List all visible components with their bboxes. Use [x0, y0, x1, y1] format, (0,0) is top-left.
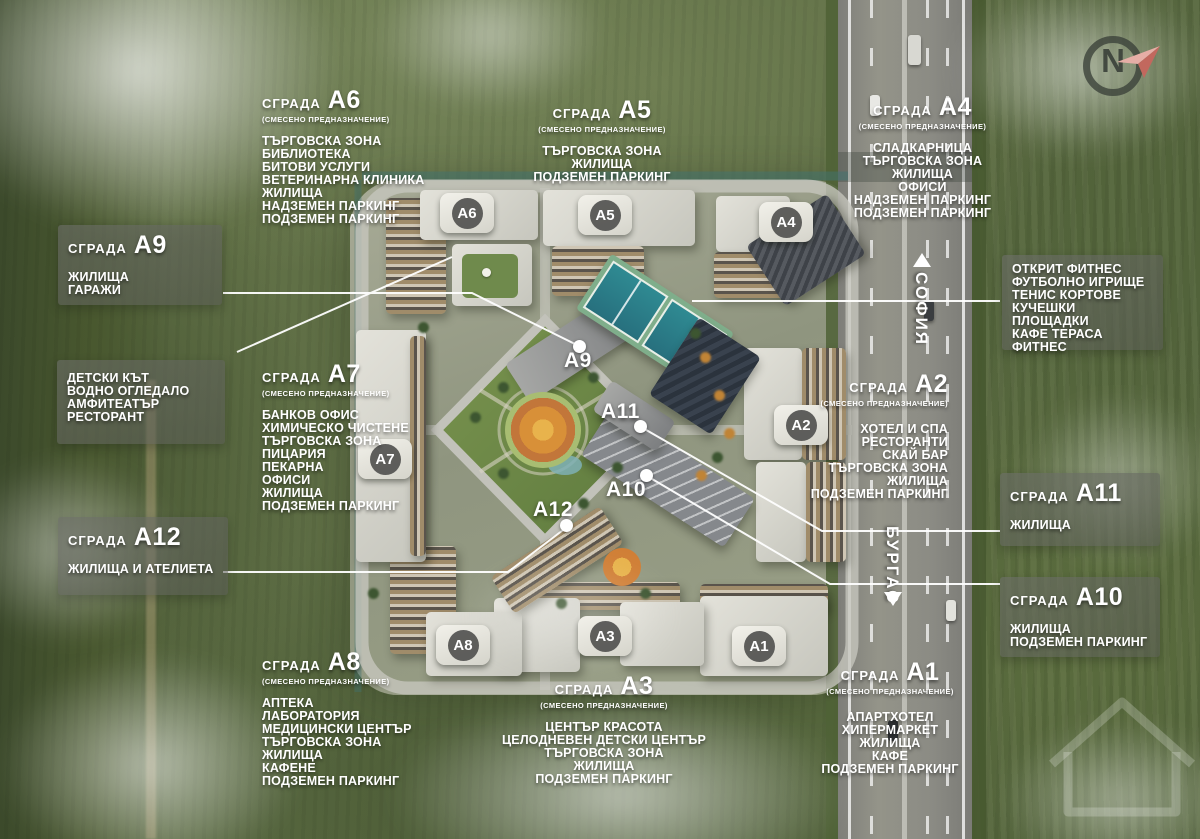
- feature-line: КУЧЕШКИ ПЛОЩАДКИ: [1012, 302, 1153, 328]
- callout-subtitle: (СМЕСЕНО ПРЕДНАЗНАЧЕНИЕ): [491, 125, 713, 134]
- compass-needle-icon: [1117, 40, 1165, 78]
- callout-title: СГРАДАА11: [1010, 481, 1150, 506]
- map-dot-a11: [634, 420, 647, 433]
- callout-a6: СГРАДАА6 (СМЕСЕНО ПРЕДНАЗНАЧЕНИЕ) ТЪРГОВ…: [262, 88, 467, 226]
- feature-line: ЖИЛИЩА: [1010, 519, 1150, 532]
- feature-list: АПТЕКАЛАБОРАТОРИЯМЕДИЦИНСКИ ЦЕНТЪРТЪРГОВ…: [262, 697, 472, 788]
- feature-list: ЖИЛИЩА И АТЕЛИЕТА: [68, 563, 218, 576]
- callout-title: СГРАДАА10: [1010, 585, 1150, 610]
- arrow-down-icon: [884, 592, 902, 606]
- vehicle: [908, 35, 921, 65]
- courtyard: [462, 254, 518, 298]
- feature-line: ПОДЗЕМЕН ПАРКИНГ: [262, 500, 467, 513]
- feature-list: ЖИЛИЩА: [1010, 519, 1150, 532]
- map-marker-a4[interactable]: А4: [759, 202, 813, 242]
- callout-title: СГРАДАА1: [795, 660, 985, 685]
- gazebo: [482, 268, 491, 277]
- feature-list: ДЕТСКИ КЪТВОДНО ОГЛЕДАЛОАМФИТЕАТЪРРЕСТОР…: [67, 372, 215, 424]
- feature-list: АПАРТХОТЕЛХИПЕРМАРКЕТЖИЛИЩАКАФЕПОДЗЕМЕН …: [795, 711, 985, 776]
- callout-subtitle: (СМЕСЕНО ПРЕДНАЗНАЧЕНИЕ): [795, 687, 985, 696]
- callout-subtitle: (СМЕСЕНО ПРЕДНАЗНАЧЕНИЕ): [758, 399, 948, 408]
- feature-list: ЖИЛИЩАГАРАЖИ: [68, 271, 212, 297]
- callout-title: СГРАДАА8: [262, 650, 472, 675]
- callout-title: СГРАДАА12: [68, 525, 218, 550]
- feature-list: ХОТЕЛ И СПАРЕСТОРАНТИСКАЙ БАРТЪРГОВСКА З…: [758, 423, 948, 501]
- callout-a9: СГРАДАА9 ЖИЛИЩАГАРАЖИ: [58, 225, 222, 305]
- feature-line: ФИТНЕС: [1012, 341, 1153, 354]
- feature-line: ПОДЗЕМЕН ПАРКИНГ: [262, 213, 467, 226]
- map-label-a10[interactable]: А10: [606, 478, 646, 502]
- callout-subtitle: (СМЕСЕНО ПРЕДНАЗНАЧЕНИЕ): [262, 389, 467, 398]
- vehicle: [946, 600, 956, 621]
- feature-list: БАНКОВ ОФИСХИМИЧЕСКО ЧИСТЕНЕТЪРГОВСКА ЗО…: [262, 409, 467, 513]
- map-dot-a9: [573, 340, 586, 353]
- map-dot-a12: [560, 519, 573, 532]
- callout-subtitle: (СМЕСЕНО ПРЕДНАЗНАЧЕНИЕ): [493, 701, 715, 710]
- trees: [0, 0, 11, 11]
- marker-circle: А5: [590, 200, 621, 231]
- callout-park-amenities: ДЕТСКИ КЪТВОДНО ОГЛЕДАЛОАМФИТЕАТЪРРЕСТОР…: [57, 360, 225, 444]
- callout-a7: СГРАДАА7 (СМЕСЕНО ПРЕДНАЗНАЧЕНИЕ) БАНКОВ…: [262, 362, 467, 513]
- feature-line: ПОДЗЕМЕН ПАРКИНГ: [1010, 636, 1150, 649]
- callout-subtitle: (СМЕСЕНО ПРЕДНАЗНАЧЕНИЕ): [830, 122, 1015, 131]
- callout-subtitle: (СМЕСЕНО ПРЕДНАЗНАЧЕНИЕ): [262, 115, 467, 124]
- feature-list: ЖИЛИЩАПОДЗЕМЕН ПАРКИНГ: [1010, 623, 1150, 649]
- feature-line: ПОДЗЕМЕН ПАРКИНГ: [491, 171, 713, 184]
- feature-line: ПОДЗЕМЕН ПАРКИНГ: [758, 488, 948, 501]
- callout-title: СГРАДАА4: [830, 95, 1015, 120]
- map-marker-a3[interactable]: А3: [578, 616, 632, 656]
- building-block-a3: [620, 602, 704, 666]
- feature-line: РЕСТОРАНТ: [67, 411, 215, 424]
- callout-a5: СГРАДАА5 (СМЕСЕНО ПРЕДНАЗНАЧЕНИЕ) ТЪРГОВ…: [491, 98, 713, 184]
- callout-sport-amenities: ОТКРИТ ФИТНЕСФУТБОЛНО ИГРИЩЕТЕНИС КОРТОВ…: [1002, 255, 1163, 350]
- callout-title: СГРАДАА9: [68, 233, 212, 258]
- callout-a4: СГРАДАА4 (СМЕСЕНО ПРЕДНАЗНАЧЕНИЕ) СЛАДКА…: [830, 95, 1015, 220]
- callout-title: СГРАДАА6: [262, 88, 467, 113]
- playground: [600, 545, 644, 589]
- map-marker-a1[interactable]: А1: [732, 626, 786, 666]
- feature-line: ПОДЗЕМЕН ПАРКИНГ: [262, 775, 472, 788]
- callout-a3: СГРАДАА3 (СМЕСЕНО ПРЕДНАЗНАЧЕНИЕ) ЦЕНТЪР…: [493, 674, 715, 786]
- callout-a8: СГРАДАА8 (СМЕСЕНО ПРЕДНАЗНАЧЕНИЕ) АПТЕКА…: [262, 650, 472, 788]
- feature-line: ПОДЗЕМЕН ПАРКИНГ: [493, 773, 715, 786]
- callout-title: СГРАДАА2: [758, 372, 948, 397]
- callout-a11: СГРАДАА11 ЖИЛИЩА: [1000, 473, 1160, 546]
- feature-list: ТЪРГОВСКА ЗОНАЖИЛИЩАПОДЗЕМЕН ПАРКИНГ: [491, 145, 713, 184]
- callout-title: СГРАДАА7: [262, 362, 467, 387]
- marker-circle: А3: [590, 621, 621, 652]
- site-plan-canvas: А6 А5 А4 А7 А2 А8 А3 А1 А9 А11 А10 А12 С…: [0, 0, 1200, 839]
- map-marker-a5[interactable]: А5: [578, 195, 632, 235]
- arrow-up-icon: [913, 253, 931, 267]
- map-dot-a10: [640, 469, 653, 482]
- callout-subtitle: (СМЕСЕНО ПРЕДНАЗНАЧЕНИЕ): [262, 677, 472, 686]
- feature-list: ЦЕНТЪР КРАСОТАЦЕЛОДНЕВЕН ДЕТСКИ ЦЕНТЪРТЪ…: [493, 721, 715, 786]
- callout-a10: СГРАДАА10 ЖИЛИЩАПОДЗЕМЕН ПАРКИНГ: [1000, 577, 1160, 657]
- callout-title: СГРАДАА5: [491, 98, 713, 123]
- playground: [505, 392, 581, 468]
- marker-circle: А1: [744, 631, 775, 662]
- callout-a1: СГРАДАА1 (СМЕСЕНО ПРЕДНАЗНАЧЕНИЕ) АПАРТХ…: [795, 660, 985, 776]
- highway-label-sofia: СОФИЯ: [911, 272, 931, 346]
- feature-list: СЛАДКАРНИЦАТЪРГОВСКА ЗОНАЖИЛИЩАОФИСИНАДЗ…: [830, 142, 1015, 220]
- feature-line: ЖИЛИЩА И АТЕЛИЕТА: [68, 563, 218, 576]
- marker-circle: А4: [771, 207, 802, 238]
- callout-a12: СГРАДАА12 ЖИЛИЩА И АТЕЛИЕТА: [58, 517, 228, 595]
- callout-title: СГРАДАА3: [493, 674, 715, 699]
- map-label-a11[interactable]: А11: [601, 400, 640, 424]
- feature-list: ТЪРГОВСКА ЗОНАБИБЛИОТЕКАБИТОВИ УСЛУГИВЕТ…: [262, 135, 467, 226]
- feature-line: ПОДЗЕМЕН ПАРКИНГ: [795, 763, 985, 776]
- dirt-road: [146, 380, 156, 839]
- callout-a2: СГРАДАА2 (СМЕСЕНО ПРЕДНАЗНАЧЕНИЕ) ХОТЕЛ …: [758, 372, 948, 501]
- feature-line: ПОДЗЕМЕН ПАРКИНГ: [830, 207, 1015, 220]
- feature-line: ГАРАЖИ: [68, 284, 212, 297]
- feature-list: ОТКРИТ ФИТНЕСФУТБОЛНО ИГРИЩЕТЕНИС КОРТОВ…: [1012, 263, 1153, 354]
